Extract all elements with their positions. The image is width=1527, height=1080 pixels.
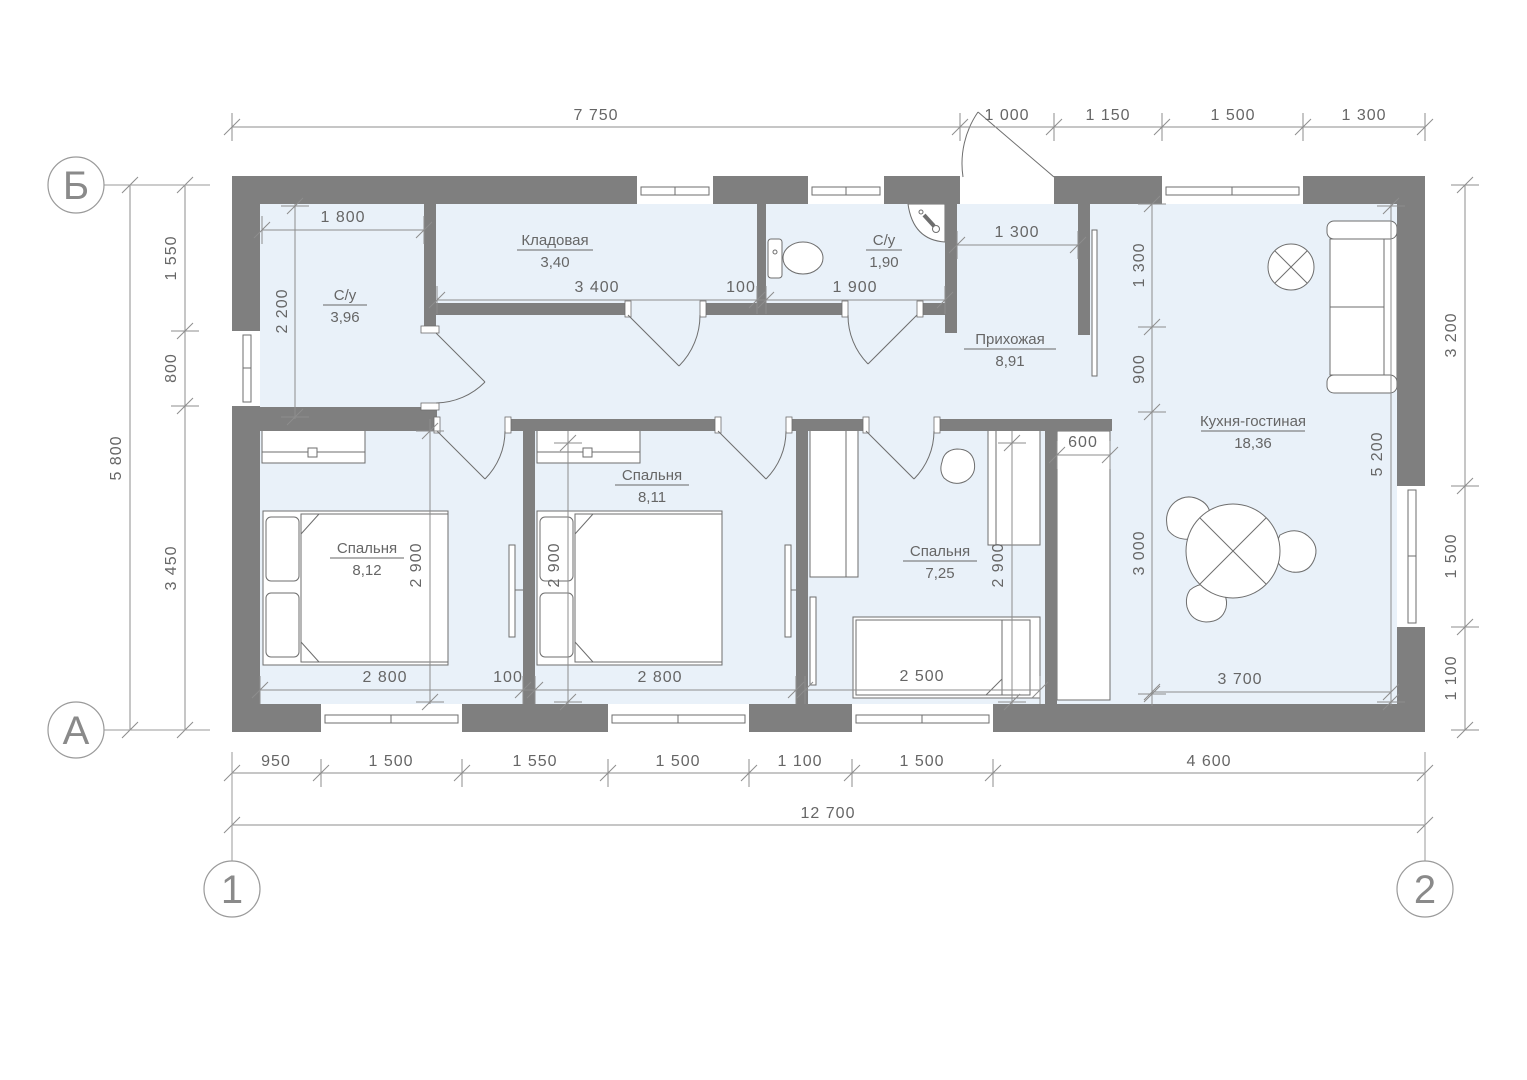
floor-plan-drawing: 7 750 1 000 1 150 1 500 1 300 950 1 500 … <box>0 0 1527 1080</box>
dim-label: 12 700 <box>801 805 856 822</box>
svg-text:Спальня: Спальня <box>337 540 397 557</box>
dim-label: 100 <box>493 669 523 686</box>
tv-symbol <box>785 545 791 637</box>
dim-label: 800 <box>163 353 180 383</box>
dim-label: 100 <box>726 279 756 296</box>
svg-text:Спальня: Спальня <box>910 543 970 560</box>
dim-label: 2 900 <box>990 542 1007 587</box>
dim-label: 2 500 <box>899 668 944 685</box>
dim-label: 1 500 <box>1210 107 1255 124</box>
grid-label: 1 <box>221 868 243 912</box>
dim-label: 1 500 <box>655 753 700 770</box>
tv-symbol <box>509 545 515 637</box>
dim-label: 3 000 <box>1131 530 1148 575</box>
grid-label: 2 <box>1414 868 1436 912</box>
pillow-symbol <box>266 517 299 581</box>
toilet-symbol <box>768 239 782 278</box>
svg-text:Спальня: Спальня <box>622 467 682 484</box>
tv-symbol <box>810 597 816 685</box>
dim-label: 3 700 <box>1217 671 1262 688</box>
dim-label: 1 000 <box>984 107 1029 124</box>
dim-label: 1 900 <box>832 279 877 296</box>
dim-label: 950 <box>261 753 291 770</box>
dim-label: 1 100 <box>777 753 822 770</box>
dim-label: 5 200 <box>1369 431 1386 476</box>
dim-label: 1 300 <box>994 224 1039 241</box>
dim-label: 1 100 <box>1443 655 1460 700</box>
dim-label: 3 450 <box>163 545 180 590</box>
dim-label: 1 300 <box>1341 107 1386 124</box>
dim-label: 1 550 <box>512 753 557 770</box>
chair-symbol <box>941 449 975 483</box>
svg-text:Кухня-гостиная: Кухня-гостиная <box>1200 413 1306 430</box>
dim-label: 7 750 <box>573 107 618 124</box>
dim-label: 3 200 <box>1443 312 1460 357</box>
mirror-symbol <box>1092 230 1097 376</box>
svg-text:Прихожая: Прихожая <box>975 331 1045 348</box>
dim-label: 2 900 <box>546 542 563 587</box>
svg-text:7,25: 7,25 <box>925 565 954 582</box>
dim-label: 900 <box>1131 354 1148 384</box>
floor-plan-page: 7 750 1 000 1 150 1 500 1 300 950 1 500 … <box>0 0 1527 1080</box>
svg-text:3,96: 3,96 <box>330 309 359 326</box>
dim-label: 600 <box>1068 434 1098 451</box>
hall-furniture <box>1092 230 1097 376</box>
svg-text:3,40: 3,40 <box>540 254 569 271</box>
svg-text:С/у: С/у <box>873 232 896 249</box>
wardrobe-symbol <box>810 429 858 577</box>
svg-text:8,11: 8,11 <box>638 489 666 506</box>
pillow-symbol <box>266 593 299 657</box>
grid-label: А <box>63 709 90 753</box>
svg-text:1,90: 1,90 <box>869 254 898 271</box>
dim-label: 3 400 <box>574 279 619 296</box>
dim-label: 2 800 <box>362 669 407 686</box>
dim-label: 2 900 <box>408 542 425 587</box>
dim-label: 5 800 <box>108 435 125 480</box>
dim-label: 1 500 <box>899 753 944 770</box>
closet-symbol <box>1057 431 1110 700</box>
dim-label: 2 200 <box>274 288 291 333</box>
dim-label: 2 800 <box>637 669 682 686</box>
svg-text:8,91: 8,91 <box>995 353 1024 370</box>
svg-text:С/у: С/у <box>334 287 357 304</box>
dim-label: 1 550 <box>163 235 180 280</box>
svg-text:Кладовая: Кладовая <box>521 232 588 249</box>
dim-label: 1 150 <box>1085 107 1130 124</box>
dim-label: 1 500 <box>368 753 413 770</box>
grid-label: Б <box>63 164 89 208</box>
dim-label: 1 300 <box>1131 242 1148 287</box>
svg-text:18,36: 18,36 <box>1234 435 1272 452</box>
svg-text:8,12: 8,12 <box>352 562 381 579</box>
dim-label: 1 500 <box>1443 533 1460 578</box>
dim-label: 4 600 <box>1186 753 1231 770</box>
dim-label: 1 800 <box>320 209 365 226</box>
